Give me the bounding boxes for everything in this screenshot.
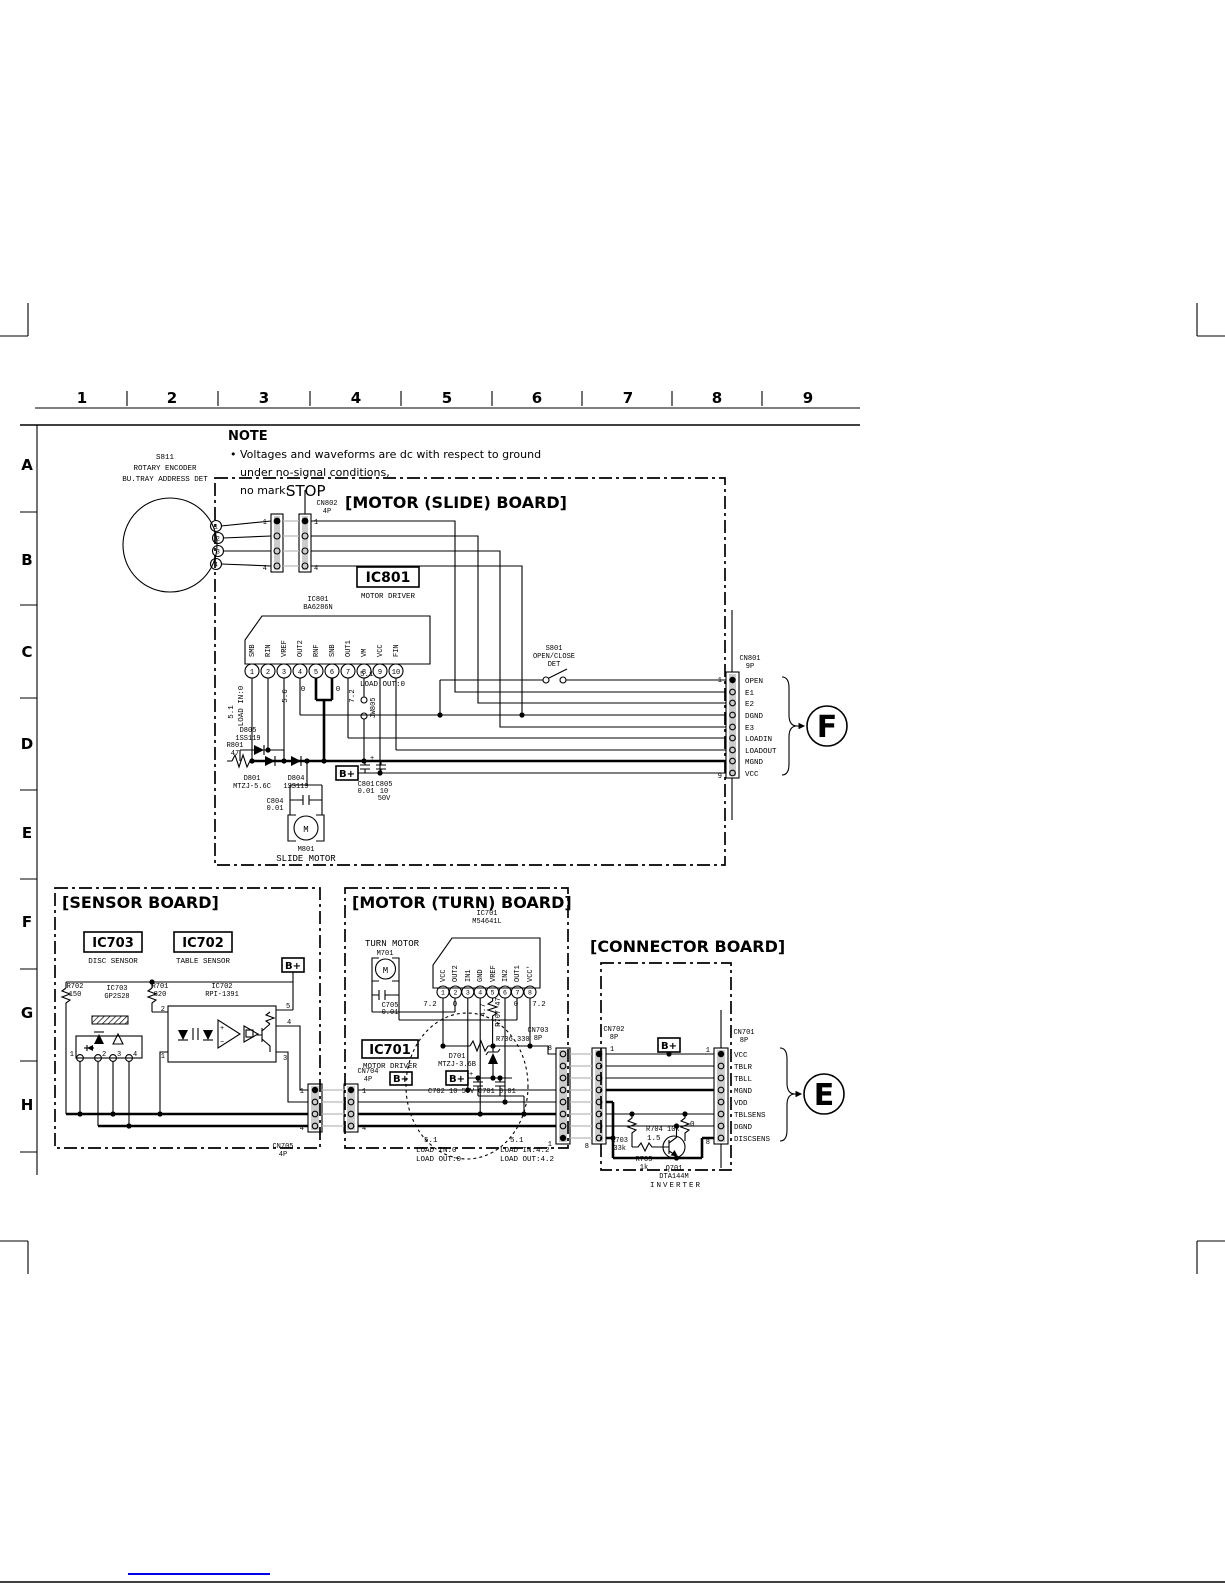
bplus-label: B+ [285,961,301,972]
cn801-signal: VCC [745,771,759,779]
c805-polarity: + [370,755,374,763]
cn702-size: 8P [610,1034,618,1042]
cn705-pin1: 1 [300,1088,304,1096]
interrupter-pin: 2 [102,1051,106,1059]
grid-row-label: A [21,456,33,474]
grid-row-label: H [21,1096,34,1114]
connector-board-title: [CONNECTOR BOARD] [590,937,785,956]
d801-part: MTZJ-5.6C [233,783,271,791]
cn703-pin8: 8 [548,1045,552,1053]
ic801-pin-num: 7 [346,669,350,677]
ic703-callout: IC703 [92,936,134,951]
turn-load-values: 5.1 LOAD IN:0 LOAD OUT:0 5.1 LOAD IN:4.2… [416,1137,554,1164]
cn701-signal: VCC [734,1052,748,1060]
c801-value: 0.01 [358,788,375,796]
grid-col-label: 7 [623,389,633,407]
cn802-pin4: 4 [263,565,267,573]
r701-value: 820 [154,991,167,999]
svg-text:−: − [220,1039,224,1047]
grid-col-label: 4 [351,389,361,407]
grid-row-label: G [21,1004,33,1022]
connector-cn802: CN802 4P 1 4 1 4 [263,490,338,573]
r704-label: R704 10k [646,1126,680,1134]
ic703-ref: IC703 [106,985,127,993]
voltage-value: 5.1 [228,705,236,719]
note-line-2: under no-signal conditions, [240,466,390,479]
voltage-value: 5.1 [360,671,374,679]
grid-row-label: D [21,735,33,753]
callout-f: F [817,710,838,745]
cn802-size: 4P [323,508,331,516]
ic701-pin-name: OUT2 [452,965,460,982]
cn702-pin8: 8 [585,1143,589,1151]
ic701-pin-num: 8 [528,990,532,997]
ic702-opto: 2 1 5 4 3 +− [161,1003,291,1063]
ic801-pins: 1 2 3 4 5 6 7 8 9 10 SMB RIN VREF OUT2 R… [245,640,403,678]
ic801-pin-num: 5 [314,669,318,677]
ic801-pin-num: 1 [250,669,254,677]
r703-value: 33k [613,1145,626,1153]
grid-column-header: 1 2 3 4 5 6 7 8 9 [20,389,860,425]
load-condition: LOAD IN:4.2 [500,1147,550,1155]
connector-cn703-cn702: CN703 8P 8 1 CN702 8P 1 8 [527,1026,624,1151]
r801-ref: R801 [227,742,244,750]
c702-polarity: + [469,1071,473,1079]
q701-ref: Q701 [666,1165,683,1173]
s801-ref: S801 [546,645,563,653]
ic701-pin-name: VREF [490,965,498,982]
d701-part: MTZJ-3.6B [438,1061,476,1069]
ic801-pin-num: 4 [298,669,302,677]
ic801-callout: IC801 [366,570,411,586]
grid-col-label: 8 [712,389,722,407]
voltage-value: 7.2 [349,689,357,703]
opto-pin1: 1 [161,1053,165,1061]
turn-motor-label: TURN MOTOR [365,939,420,949]
ic703-role: DISC SENSOR [88,958,138,966]
s801-function: OPEN/CLOSE [533,653,575,661]
ic801-pin-name: SMB [249,644,257,657]
turn-motor: M C705 0.01 [372,958,399,1020]
r702-ref: R702 [67,983,84,991]
ic701-callout: IC701 [369,1043,411,1058]
ic701-part: M54641L [472,918,501,926]
turn-motor-ref: M701 [377,950,394,958]
ic701-pin-num: 1 [441,990,445,997]
voltage-value: 5.1 [510,1137,524,1145]
schematic-page: 1 2 3 4 5 6 7 8 9 A B C D E F G H NOTE •… [0,0,1225,1585]
r706-label: R706 330 [496,1036,530,1044]
cn801-size: 9P [746,663,754,671]
sensor-board-title: [SENSOR BOARD] [62,893,219,912]
ic801-pin-num: 2 [266,669,270,677]
note-title: NOTE [228,429,268,444]
d804-part: 1SS119 [283,783,308,791]
voltage-value: 0 [301,686,306,694]
callout-e: E [814,1078,835,1113]
cn801-signal: LOADIN [745,736,772,744]
voltage-value: 7.2 [423,1001,437,1009]
cn701-ref: CN701 [733,1029,754,1037]
cn701-signal: TBLSENS [734,1112,766,1120]
ic701-pin-num: 5 [491,990,495,997]
ic701-ref: IC701 [476,910,497,918]
encoder-pin: 2 [216,536,220,543]
cn701-size: 8P [740,1037,748,1045]
s801-function2: DET [548,661,561,669]
c705-value: 0.01 [382,1009,399,1017]
ic701-pin-num: 7 [515,990,519,997]
grid-col-label: 6 [532,389,542,407]
r705-ref: R705 [636,1156,653,1164]
grid-col-label: 2 [167,389,177,407]
interrupter-pin: 3 [117,1051,121,1059]
ic701-pin-name: IN1 [465,969,473,982]
c805-voltage: 50V [378,795,391,803]
ic701-role: MOTOR DRIVER [363,1063,418,1071]
encoder-ref: S811 [156,454,175,462]
ic701-pin-num: 4 [478,990,482,997]
load-condition: LOAD IN:0 [416,1147,457,1155]
ic801-pin-num: 10 [392,669,400,677]
ic801-pin-name: RNF [313,644,321,657]
grid-row-label: B [21,551,32,569]
turn-board-outline [345,888,568,1148]
q701-role: INVERTER [650,1182,702,1190]
motor-symbol: M [303,825,308,835]
ic701-pin-name: GND [477,969,485,982]
sensor-board: [SENSOR BOARD] IC703 DISC SENSOR IC702 T… [55,888,320,1148]
cn701-pin1: 1 [706,1047,710,1055]
cn801-signal: E1 [745,690,755,698]
note-block: NOTE • Voltages and waveforms are dc wit… [228,429,541,500]
slide-motor-name: SLIDE MOTOR [276,854,336,864]
ic702-ref: IC702 [211,983,232,991]
svg-text:+: + [220,1025,224,1033]
connector-cn801: CN801 9P 1 9 OPEN E1 E2 DGND E3 LOADIN L… [718,610,847,820]
interrupter-pin: 4 [133,1051,137,1059]
ic701-pin-name: VCC' [527,965,535,982]
encoder-name: ROTARY ENCODER [133,465,197,473]
opto-pin3: 3 [283,1055,287,1063]
cn801-signal: MGND [745,759,764,767]
cn705-ref: CN705 [272,1143,293,1151]
cn703-size: 8P [534,1035,542,1043]
encoder-function: BU.TRAY ADDRESS DET [122,476,208,484]
ic801-pin-num: 3 [282,669,286,677]
d804-ref: D804 [288,775,305,783]
motor-turn-board: [MOTOR (TURN) BOARD] IC701 M54641L TURN … [345,888,572,1164]
ic801-pin-name: VREF [281,640,289,657]
ic801-pin-name: VM [361,649,369,657]
voltage-value: 7.2 [532,1001,546,1009]
motor-symbol: M [383,966,388,976]
cn802-pin1: 1 [263,519,267,527]
voltage-value: 0 [514,1001,519,1009]
ic801-ref: IC801 [307,596,328,604]
bplus-label: B+ [393,1074,409,1085]
ic703-part: GP2S28 [104,993,129,1001]
grid-col-label: 1 [77,389,87,407]
cn701-signal: MGND [734,1088,753,1096]
load-condition: LOAD OUT:0 [416,1156,462,1164]
ic703-photo-interrupter: 1 2 3 4 [70,1016,142,1061]
cn801-signal: E3 [745,725,755,733]
r801-value: 47 [231,750,239,758]
ic701-pin-num: 3 [466,990,470,997]
turn-board-title: [MOTOR (TURN) BOARD] [352,893,572,912]
voltage-value: 5.1 [424,1137,438,1145]
grid-row-label: C [21,643,32,661]
ic801-pin-name: OUT1 [345,640,353,657]
note-line-3: no mark: [240,484,289,497]
d701-ref: D701 [449,1053,466,1061]
connector-cn701: CN701 8P 1 8 VCC TBLR TBLL MGND VDD TBLS… [706,1010,844,1168]
opto-pin2: 2 [161,1006,165,1014]
cn801-pin9: 9 [718,773,722,781]
ic801-pin-name: SNB [329,644,337,657]
r701-ref: R701 [152,983,169,991]
cn802-ref: CN802 [316,500,337,508]
voltage-value: 5.6 [282,689,290,703]
cn701-signal: TBLL [734,1076,753,1084]
page-footer [0,1574,1225,1582]
r705-value: 1k [640,1164,648,1172]
cn701-signal: DGND [734,1124,753,1132]
grid-row-label: F [22,913,32,931]
ic801-pin-num: 6 [330,669,334,677]
c804-value: 0.01 [267,805,284,813]
grid-col-label: 9 [803,389,813,407]
cn703-ref: CN703 [527,1027,548,1035]
ic801-pin-name: FIN [393,644,401,657]
cn701-signal: DISCSENS [734,1136,771,1144]
turn-board-wires: R706 330 D701 MTZJ-3.6B B+ + C702 10 50V… [358,998,556,1126]
cn704-size: 4P [364,1076,372,1084]
opto-pin5: 5 [286,1003,290,1011]
load-condition: LOAD OUT:0 [360,681,406,689]
ic801-pin-name: RIN [265,644,273,657]
voltage-value: 0 [336,686,341,694]
ic702-callout: IC702 [182,936,224,951]
schematic-canvas: 1 2 3 4 5 6 7 8 9 A B C D E F G H NOTE •… [0,0,1225,1585]
cn701-signal: VDD [734,1100,748,1108]
connector-board: [CONNECTOR BOARD] B+ R703 33k R705 1k R7… [590,937,785,1190]
ic702-part: RPI-1391 [205,991,239,999]
load-condition: LOAD IN:0 [238,685,246,726]
cn702-ref: CN702 [603,1026,624,1034]
load-condition: LOAD OUT:4.2 [500,1156,554,1164]
grid-row-label: E [22,824,32,842]
cn801-pin1: 1 [718,677,722,685]
cn705-size: 4P [279,1151,287,1159]
slide-motor-ref: M801 [298,846,315,854]
encoder-pin: 3 [216,549,220,556]
cn701-brace [780,1048,795,1141]
cn801-signal: OPEN [745,678,763,686]
bplus-label: B+ [339,769,355,780]
grid-row-header: A B C D E F G H [20,425,37,1175]
cn801-brace [782,677,797,775]
ic801-part: BA6286N [303,604,332,612]
r707-label: R707 47 [495,997,503,1026]
cn801-ref: CN801 [739,655,760,663]
r702-value: 150 [69,991,82,999]
c701-label: C701 0.01 [478,1088,516,1096]
cn701-pin8: 8 [706,1139,710,1147]
slide-board-title: [MOTOR (SLIDE) BOARD] [345,493,567,512]
ic701-body [433,938,540,988]
ic701-pin-num: 2 [453,990,457,997]
note-line-1: • Voltages and waveforms are dc with res… [230,448,541,461]
q701-part: DTA144M [659,1173,688,1181]
r703-ref: R703 [611,1137,628,1145]
ic702-role: TABLE SENSOR [176,958,231,966]
bplus-label: B+ [449,1074,465,1085]
note-stop-value: STOP [286,482,326,500]
ic801-pin-name: OUT2 [297,640,305,657]
ic701-pin-name: VCC [440,969,448,982]
ic701-pin-name: IN2 [502,969,510,982]
bplus-label: B+ [661,1041,677,1052]
voltage-value: 0 [690,1121,695,1129]
ic801-pin-num: 9 [378,669,382,677]
cn704-pin1: 1 [362,1088,366,1096]
cn703-pin1: 1 [548,1141,552,1149]
interrupter-pin: 1 [70,1051,74,1059]
voltage-value: 1.5 [647,1135,661,1143]
cn701-signal: TBLR [734,1064,753,1072]
ic701-pins: 1 2 3 4 5 6 7 8 VCC OUT2 IN1 GND VREF IN… [437,965,536,998]
ic801-pin-name: VCC [377,644,385,657]
cn705-pin4: 4 [300,1125,304,1133]
d805-ref: D805 [240,727,257,735]
ic801-role: MOTOR DRIVER [361,593,416,601]
grid-col-label: 3 [259,389,269,407]
cn802-pin1: 1 [314,519,318,527]
cn801-signal: E2 [745,701,754,709]
switch-s801: S801 OPEN/CLOSE DET [533,645,575,683]
d801-ref: D801 [244,775,261,783]
grid-col-label: 5 [442,389,452,407]
ic701-pin-num: 6 [503,990,507,997]
cn801-signal: DGND [745,713,764,721]
cn801-signal: LOADOUT [745,748,777,756]
ic701-pin-name: OUT1 [514,965,522,982]
cn702-pin1: 1 [610,1046,614,1054]
